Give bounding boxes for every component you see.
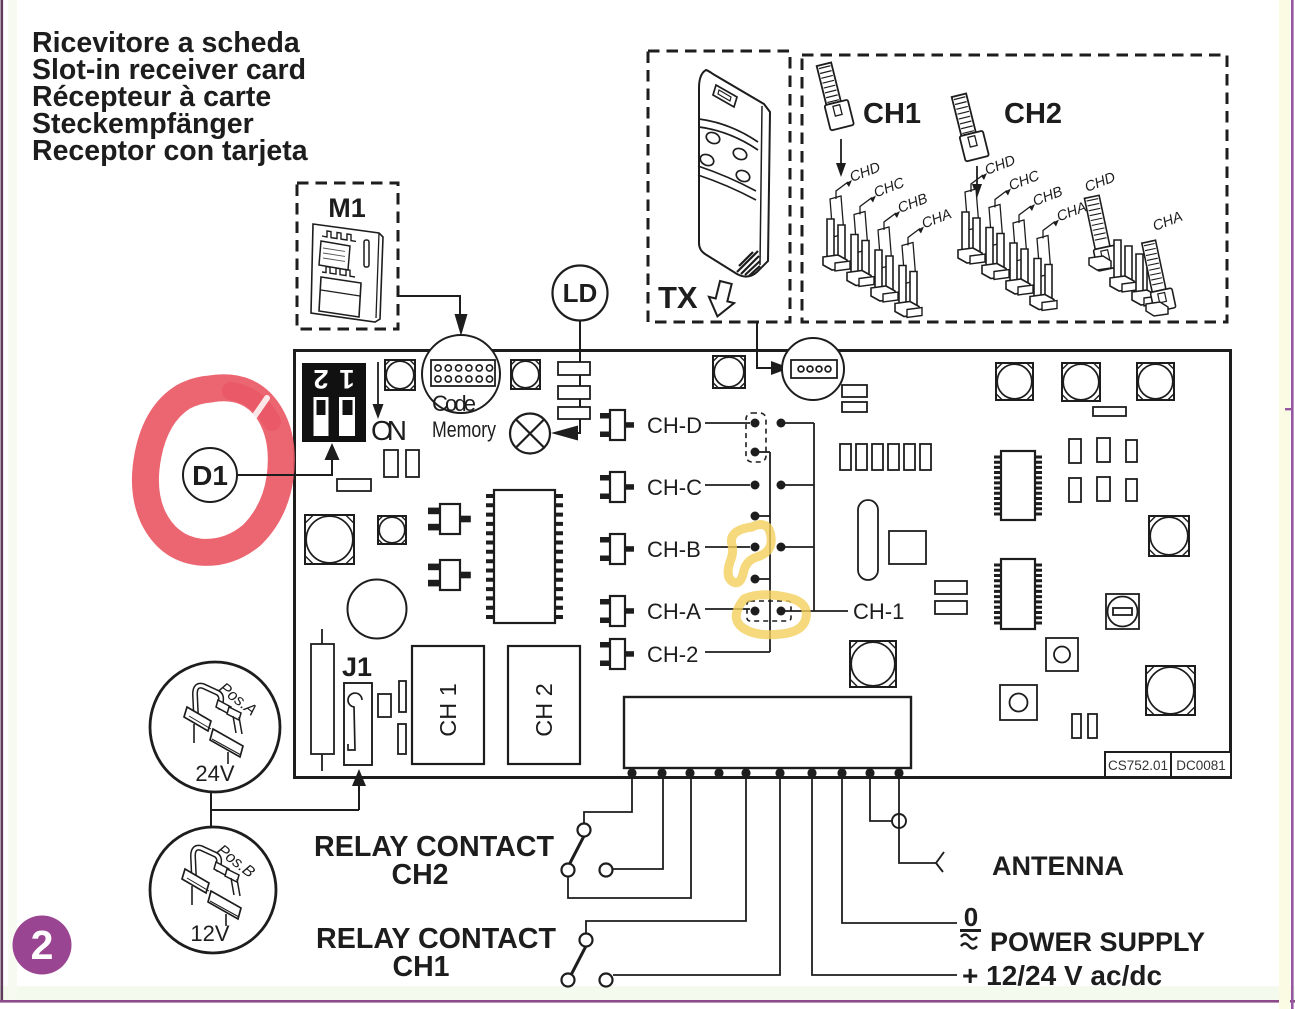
svg-text:2: 2 (31, 922, 54, 968)
svg-text:Receptor con tarjeta: Receptor con tarjeta (32, 135, 309, 167)
svg-text:0: 0 (964, 902, 978, 932)
svg-text:CH1: CH1 (392, 951, 449, 983)
svg-text:12V: 12V (190, 921, 229, 946)
svg-text:CH-C: CH-C (647, 475, 702, 500)
svg-text:J1: J1 (342, 652, 372, 682)
svg-text:CH-D: CH-D (647, 413, 702, 438)
svg-text:DC0081: DC0081 (1176, 758, 1226, 773)
svg-text:CH 1: CH 1 (435, 683, 461, 737)
svg-text:CH1: CH1 (863, 98, 921, 130)
svg-text:CH-B: CH-B (647, 537, 701, 562)
svg-text:M1: M1 (328, 193, 366, 223)
svg-text:POWER SUPPLY: POWER SUPPLY (990, 927, 1205, 957)
svg-text:+ 12/24 V ac/dc: + 12/24 V ac/dc (962, 960, 1162, 991)
svg-text:Memory: Memory (432, 417, 496, 442)
svg-text:CH-1: CH-1 (853, 599, 904, 624)
svg-text:LD: LD (563, 278, 598, 308)
svg-text:TX: TX (658, 280, 698, 315)
svg-text:CH-2: CH-2 (647, 642, 698, 667)
svg-text:D1: D1 (192, 460, 228, 491)
svg-text:CH2: CH2 (391, 859, 448, 891)
svg-text:CH 2: CH 2 (531, 683, 557, 737)
svg-text:24V: 24V (195, 761, 234, 786)
svg-text:ANTENNA: ANTENNA (992, 851, 1124, 881)
svg-text:CH-A: CH-A (647, 599, 701, 624)
svg-text:CS752.01: CS752.01 (1108, 758, 1168, 773)
svg-text:Code: Code (432, 391, 476, 416)
svg-text:2: 2 (313, 364, 328, 394)
svg-text:ON: ON (371, 415, 407, 446)
svg-text:1: 1 (339, 364, 354, 394)
svg-text:CH2: CH2 (1004, 98, 1062, 130)
